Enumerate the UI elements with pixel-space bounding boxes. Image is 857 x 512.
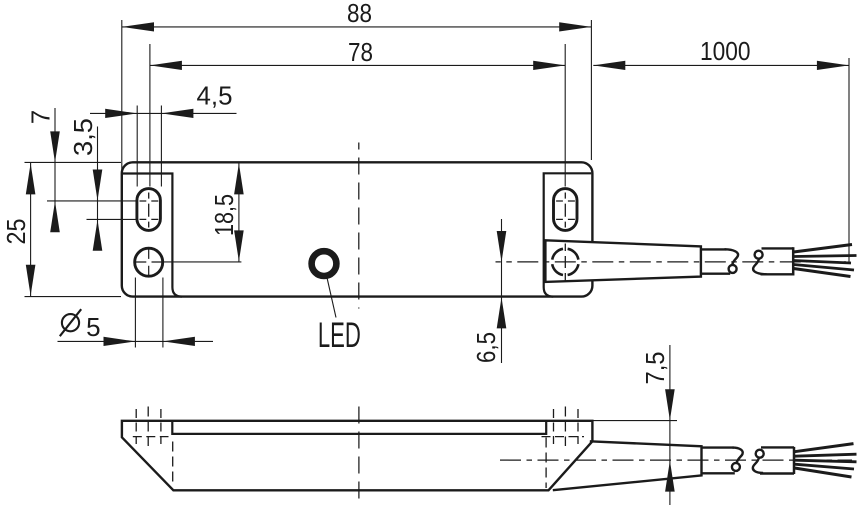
svg-text:78: 78	[348, 37, 373, 67]
svg-text:5: 5	[86, 312, 100, 342]
svg-text:18,5: 18,5	[209, 194, 239, 236]
svg-text:88: 88	[347, 0, 372, 28]
svg-text:7,5: 7,5	[640, 352, 670, 385]
svg-text:25: 25	[1, 219, 31, 245]
svg-text:7: 7	[26, 110, 56, 124]
svg-text:LED: LED	[318, 316, 361, 355]
svg-text:4,5: 4,5	[197, 81, 233, 111]
svg-text:6,5: 6,5	[471, 332, 501, 363]
svg-text:1000: 1000	[700, 36, 751, 66]
svg-text:3,5: 3,5	[68, 118, 98, 156]
